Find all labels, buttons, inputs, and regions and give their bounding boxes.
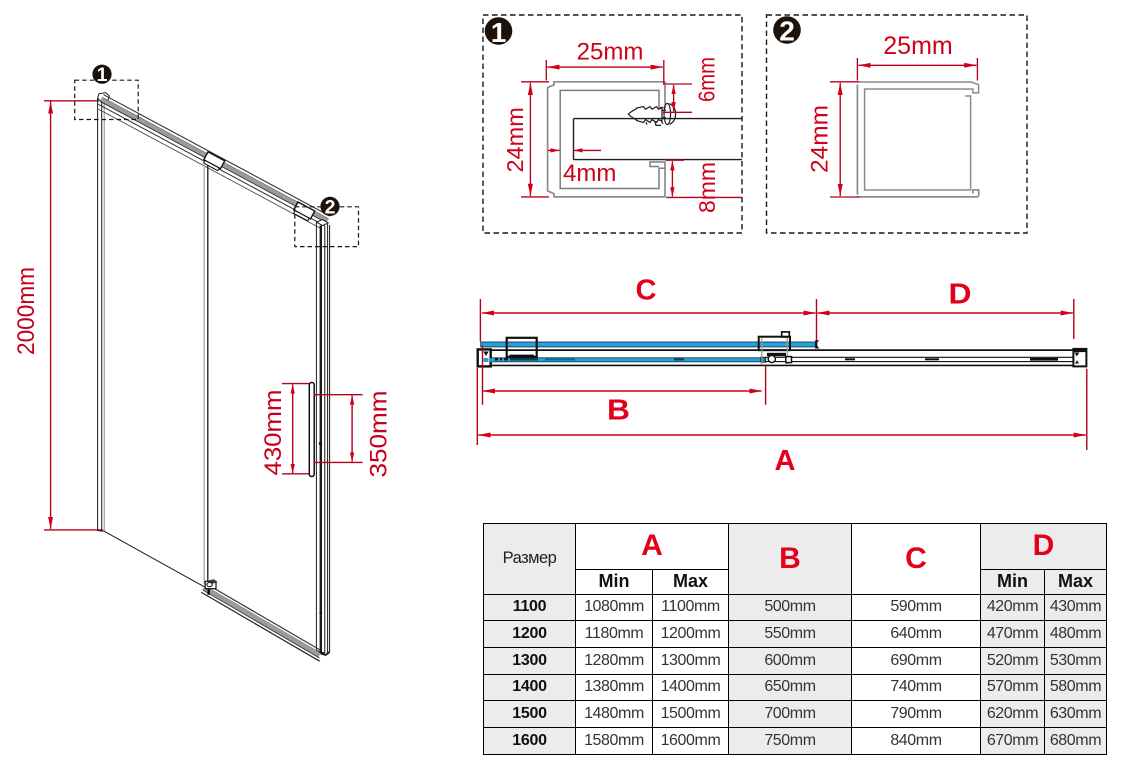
svg-text:2: 2	[325, 196, 336, 218]
svg-text:C: C	[636, 275, 657, 307]
svg-text:350mm: 350mm	[366, 391, 393, 478]
svg-text:B: B	[607, 395, 630, 427]
svg-text:4mm: 4mm	[563, 160, 616, 187]
svg-text:D: D	[949, 279, 972, 311]
svg-text:1: 1	[97, 64, 108, 86]
svg-text:25mm: 25mm	[577, 39, 644, 66]
svg-text:A: A	[775, 445, 796, 477]
svg-text:2: 2	[779, 16, 795, 47]
svg-text:24mm: 24mm	[807, 105, 834, 173]
svg-text:430mm: 430mm	[260, 390, 287, 476]
svg-text:6mm: 6mm	[694, 57, 720, 102]
svg-text:25mm: 25mm	[883, 32, 952, 60]
svg-text:8mm: 8mm	[694, 162, 720, 213]
svg-text:2000mm: 2000mm	[13, 267, 40, 355]
svg-text:1: 1	[491, 17, 507, 48]
svg-text:24mm: 24mm	[502, 107, 528, 172]
